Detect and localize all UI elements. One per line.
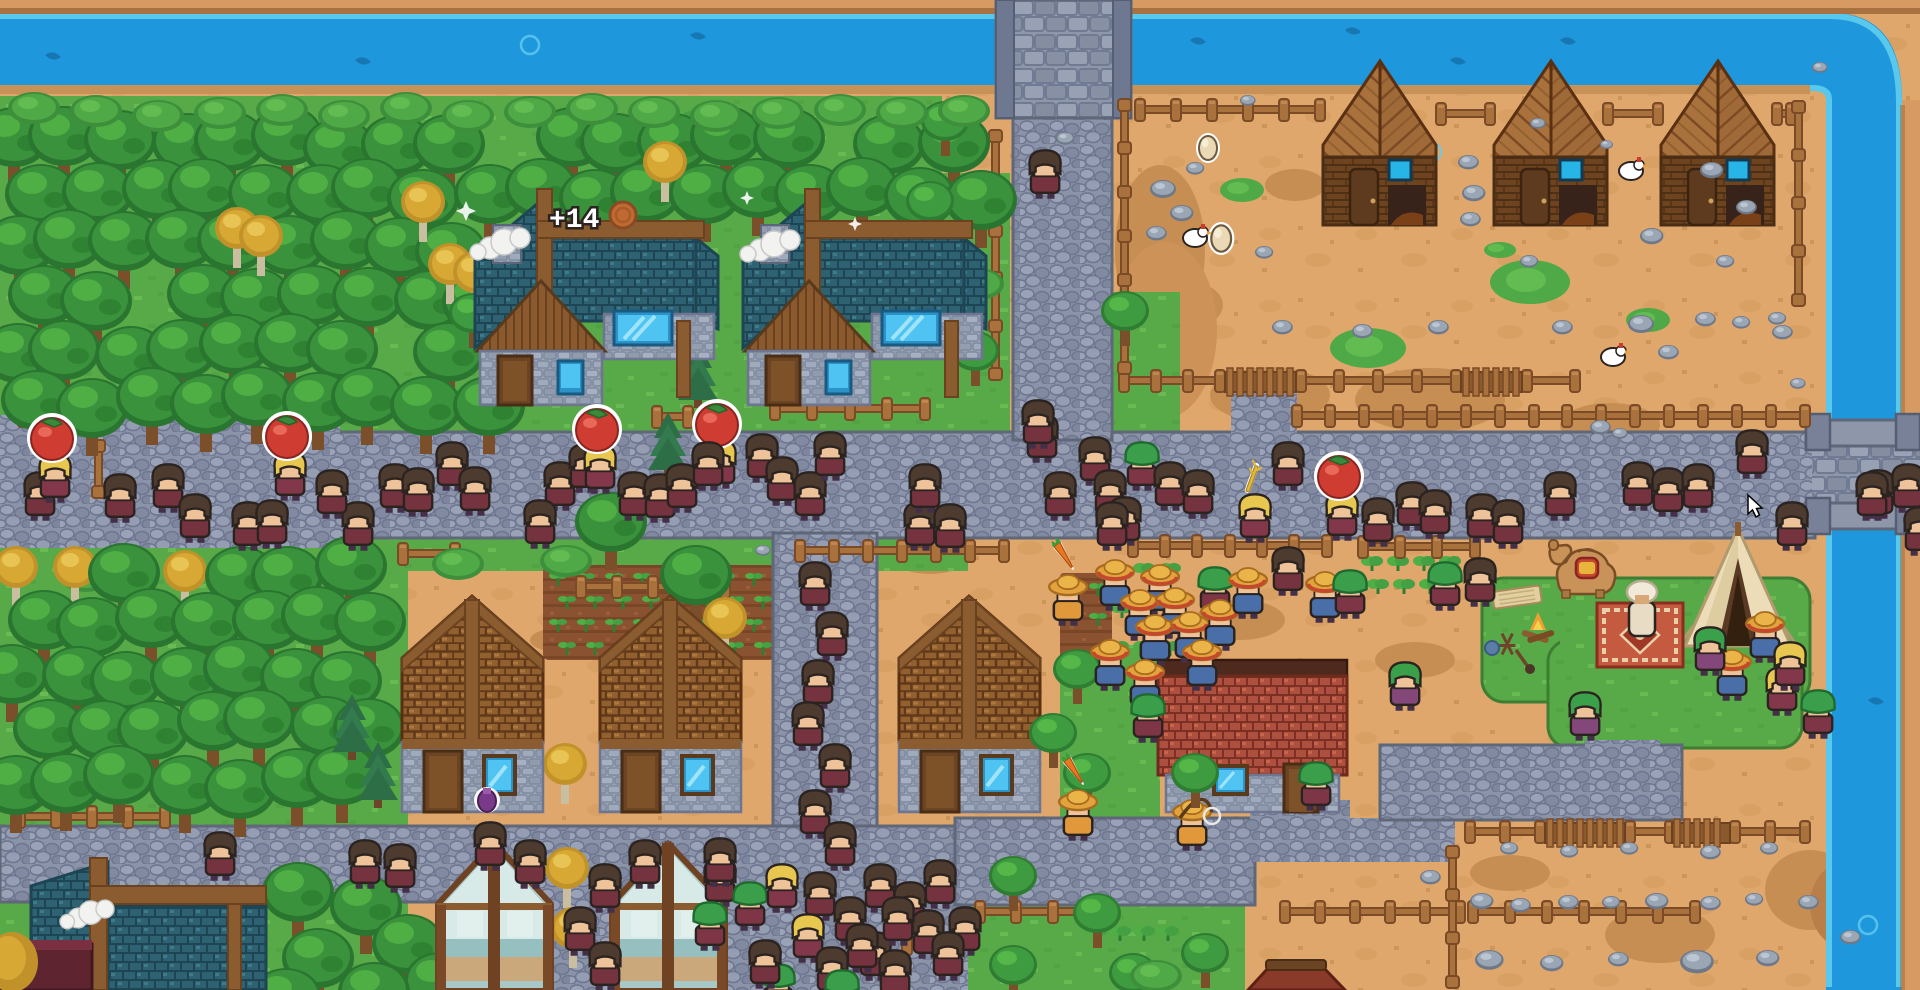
svg-text:+14: +14 — [549, 205, 599, 236]
